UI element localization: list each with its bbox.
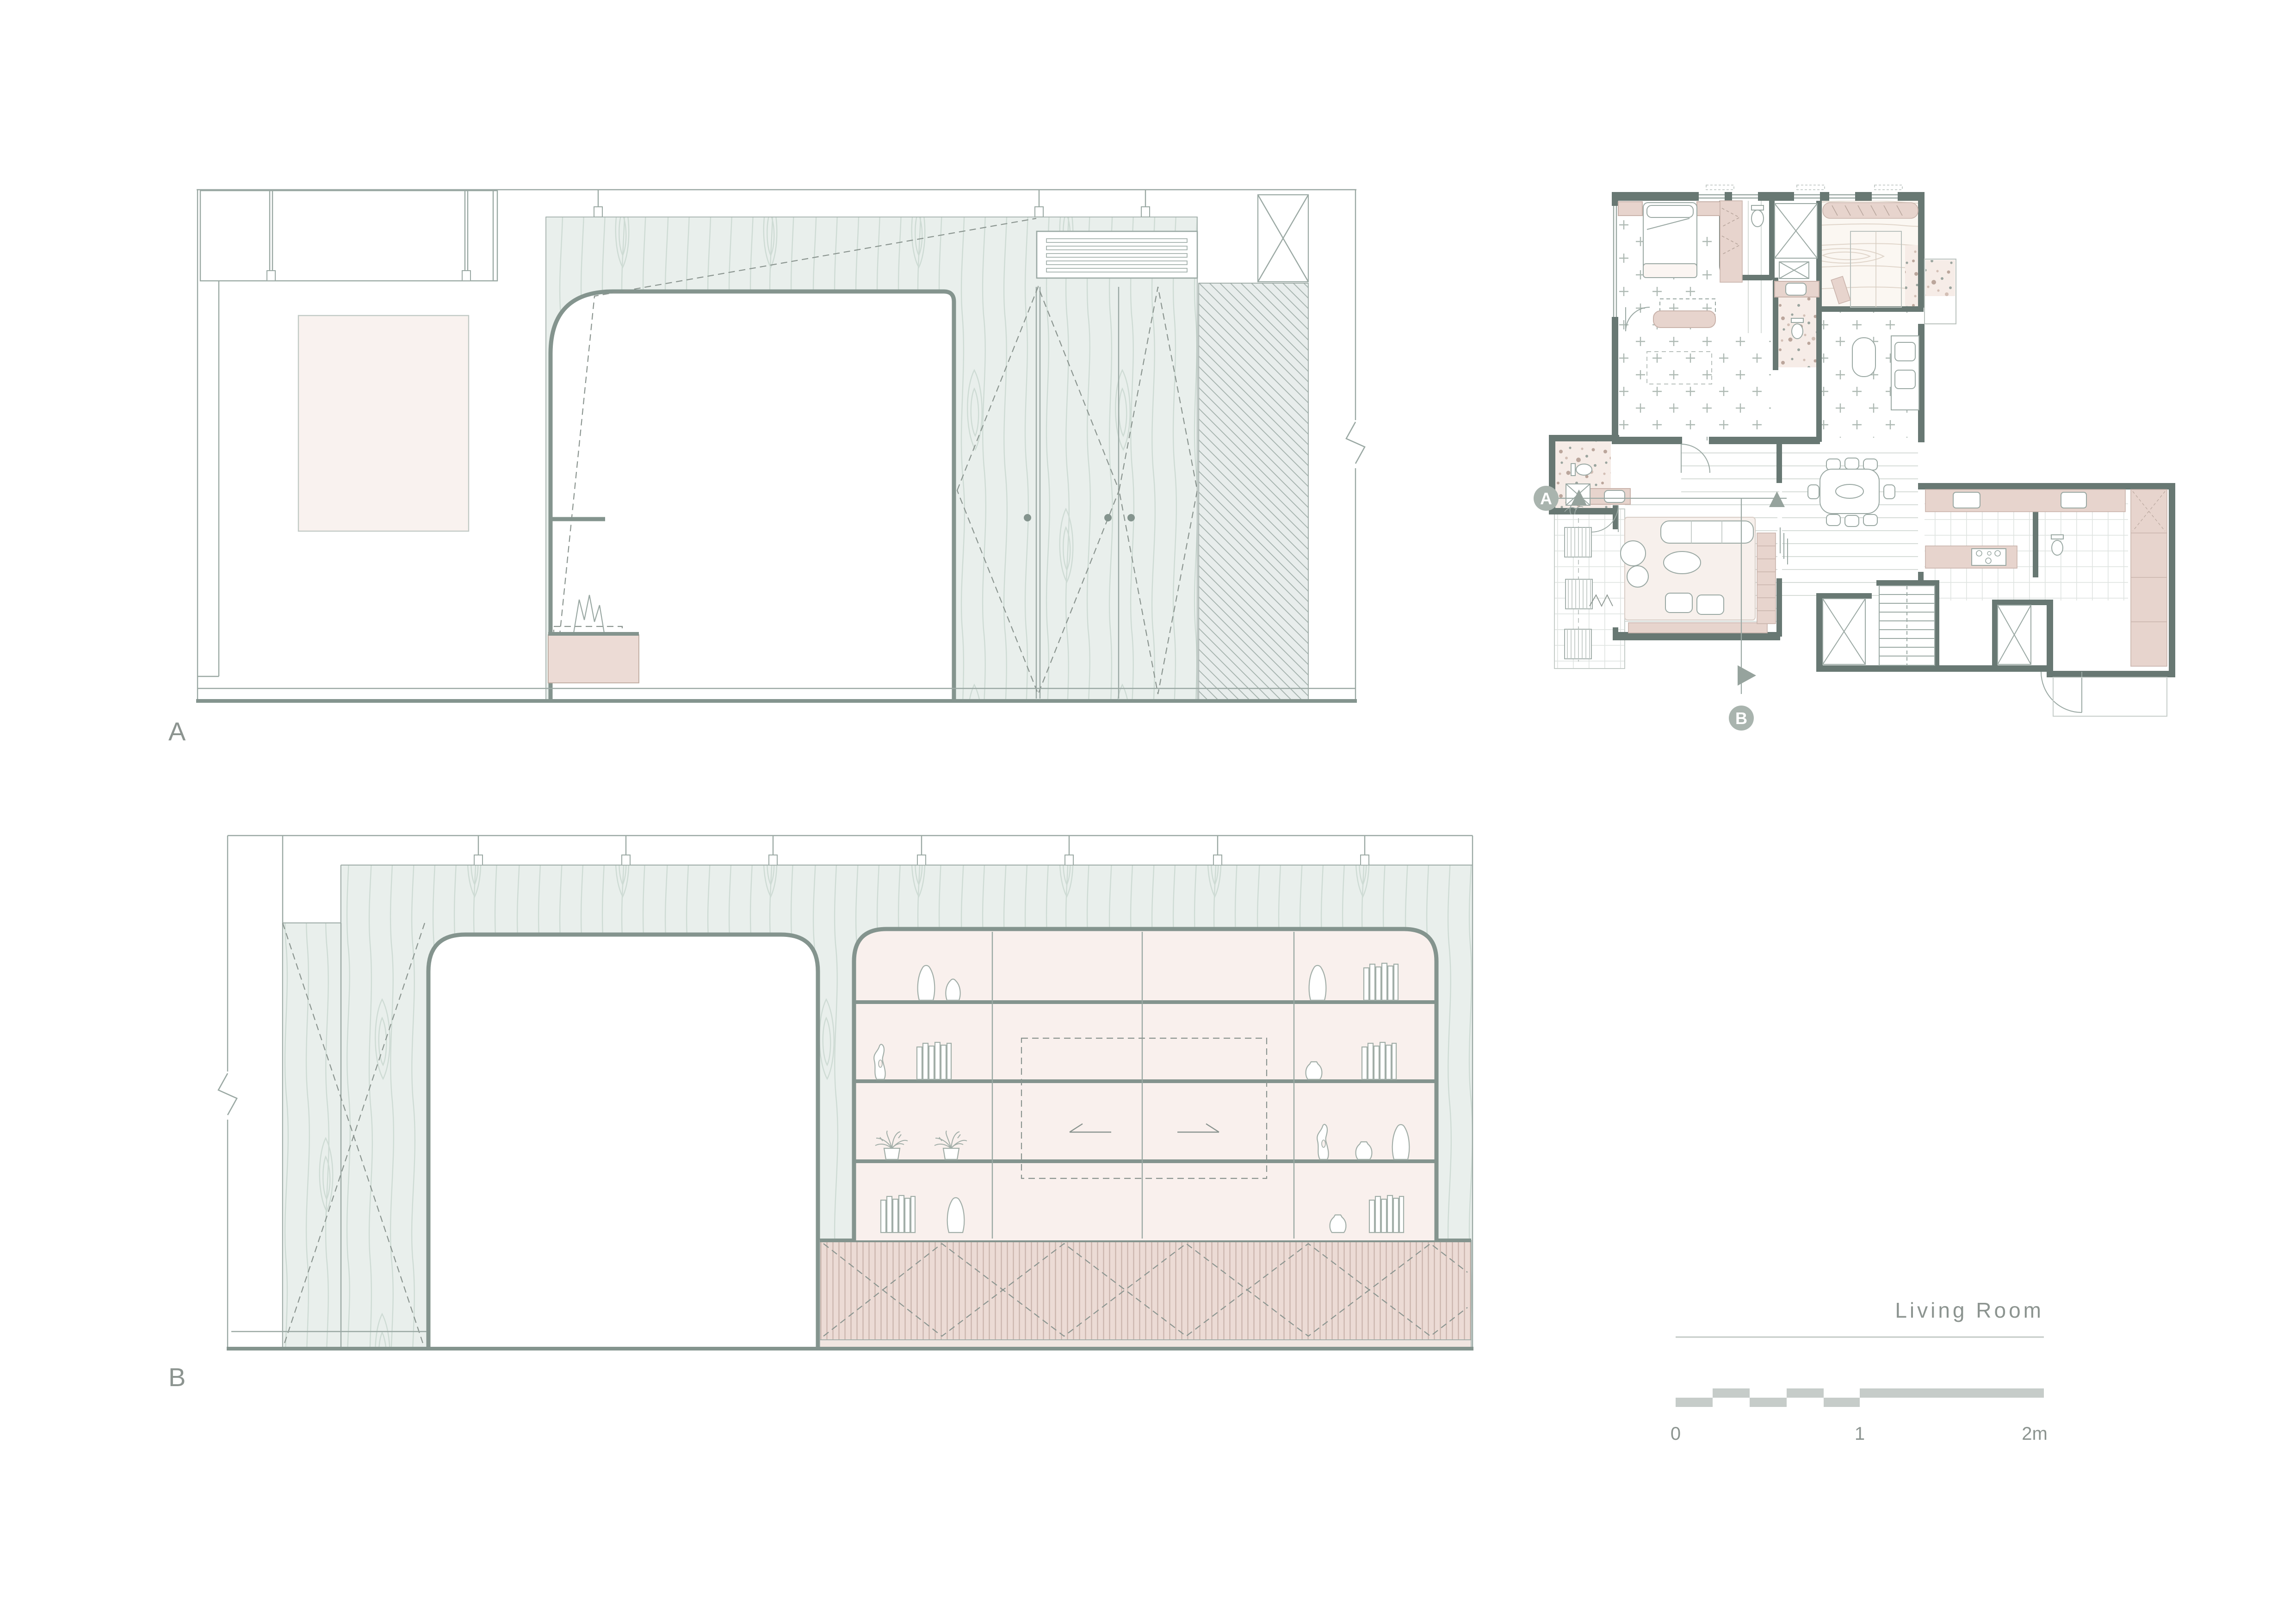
armchair xyxy=(1621,541,1646,566)
door-opening xyxy=(428,935,818,1349)
toilet xyxy=(2051,535,2063,555)
artwork-frame xyxy=(298,316,469,531)
door-swing xyxy=(2041,672,2082,712)
door-handle-dot xyxy=(1104,514,1112,521)
elevation-b: B xyxy=(168,836,1473,1392)
toilet xyxy=(1751,205,1764,227)
planter xyxy=(1566,579,1592,609)
drawing-sheet: A xyxy=(0,0,2296,1623)
elevator xyxy=(1823,599,1865,664)
pantry-cabinets xyxy=(2131,489,2167,666)
structural-column-marker xyxy=(1258,195,1308,282)
books-icon xyxy=(881,1196,915,1233)
sofa xyxy=(1661,521,1753,543)
door-handle-dot xyxy=(1024,514,1031,521)
elevation-b-label: B xyxy=(168,1363,186,1392)
elevation-a: A xyxy=(168,190,1368,746)
hall-floor xyxy=(1618,331,1771,440)
sink xyxy=(2061,492,2086,508)
scale-tick-0: 0 xyxy=(1671,1424,1681,1444)
books-icon xyxy=(1369,1196,1404,1233)
dresser xyxy=(1653,311,1715,328)
planter xyxy=(1565,527,1591,557)
break-line-icon xyxy=(1343,420,1368,468)
drawing-title: Living Room xyxy=(1895,1298,2044,1322)
entry xyxy=(2041,672,2167,716)
left-wall xyxy=(198,281,469,676)
break-line-icon xyxy=(216,1072,240,1120)
living-room xyxy=(1621,517,1788,633)
fireplace-cabinet xyxy=(548,635,639,683)
hatched-wall-panel xyxy=(1199,283,1308,701)
section-marker-a-label: A xyxy=(1540,489,1552,508)
books-icon xyxy=(1364,963,1398,1000)
floor-plan: A B xyxy=(1534,185,2175,731)
ceiling-hanger-clips xyxy=(474,836,1369,865)
closet-strip xyxy=(1720,201,1742,282)
door-handle-dot xyxy=(1127,514,1135,521)
bathtub xyxy=(1852,338,1875,377)
scale-bar xyxy=(1676,1388,2044,1407)
books-icon xyxy=(1362,1042,1396,1079)
sink xyxy=(1953,492,1980,508)
section-marker-b-label: B xyxy=(1735,709,1747,728)
planter xyxy=(1565,629,1591,659)
side-console xyxy=(1757,533,1776,624)
armchair xyxy=(1627,566,1648,587)
wardrobe xyxy=(1775,204,1817,279)
stairs xyxy=(1879,586,1935,665)
ceiling-hanger-clips xyxy=(594,190,1150,217)
ottoman xyxy=(1665,593,1692,613)
shelving-unit xyxy=(854,929,1436,1240)
scale-tick-2m: 2m xyxy=(2022,1424,2048,1444)
base-cabinet xyxy=(820,1240,1471,1349)
title-block: Living Room 0 1 2m xyxy=(1671,1298,2048,1444)
elevation-a-label: A xyxy=(168,717,186,746)
ottoman xyxy=(1697,595,1724,614)
living-room-floor xyxy=(1681,448,1779,504)
architectural-drawing: A xyxy=(0,0,2296,1623)
coffee-table xyxy=(1664,551,1701,574)
balcony-nook xyxy=(1925,260,1955,296)
section-arrow-icon xyxy=(1738,665,1756,686)
elevator xyxy=(1998,605,2031,664)
air-vent-grille xyxy=(1037,231,1197,278)
tv-bench xyxy=(1628,623,1767,633)
ceiling-bulkhead xyxy=(200,191,497,281)
scale-tick-1: 1 xyxy=(1855,1424,1865,1444)
books-icon xyxy=(917,1042,951,1079)
